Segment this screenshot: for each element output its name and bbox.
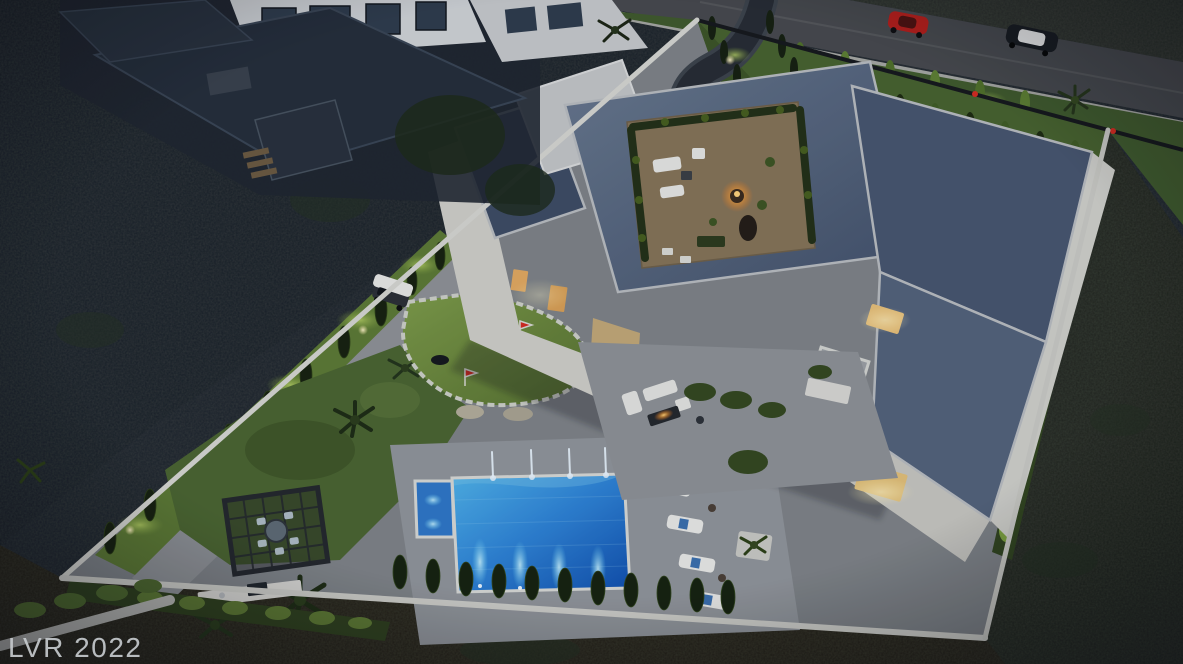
dusk-cast-overlay	[0, 0, 1183, 664]
watermark: LVR 2022	[8, 632, 142, 663]
aerial-estate-rendering: LVR 2022	[0, 0, 1183, 664]
